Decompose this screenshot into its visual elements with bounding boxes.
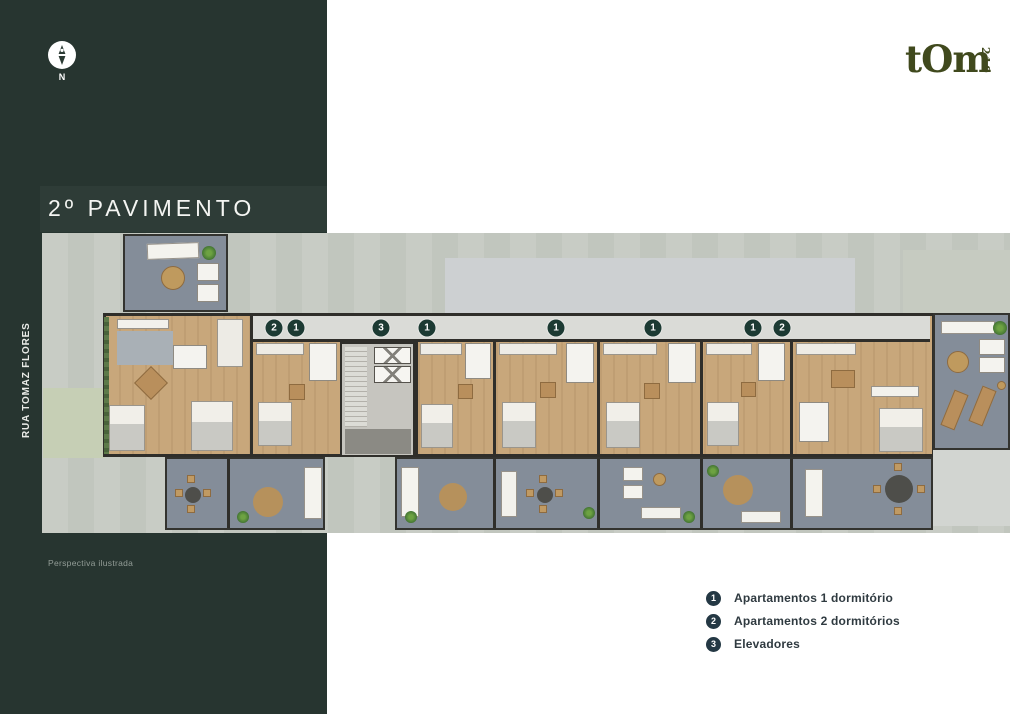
brand-logo-text: tOm <box>905 38 990 80</box>
brand-logo: tOm 219 <box>905 38 1005 88</box>
unit-badge: 2 <box>774 320 791 337</box>
legend-label-3: Elevadores <box>734 637 800 651</box>
legend-badge-3: 3 <box>706 637 721 652</box>
street-label: RUA TOMAZ FLORES <box>21 318 32 438</box>
brand-logo-number: 219 <box>979 47 992 74</box>
unit-badge: 1 <box>548 320 565 337</box>
compass-icon: N <box>47 41 77 85</box>
north-needle-icon <box>56 44 68 66</box>
legend-label-2: Apartamentos 2 dormitórios <box>734 614 900 628</box>
floor-plan: 21311112 <box>42 233 1010 533</box>
legend-item-2dorm: 2 Apartamentos 2 dormitórios <box>706 613 900 629</box>
unit-badge: 1 <box>745 320 762 337</box>
unit-badge: 2 <box>266 320 283 337</box>
unit-badge: 1 <box>645 320 662 337</box>
legend-item-elevators: 3 Elevadores <box>706 636 900 652</box>
legend-badge-2: 2 <box>706 614 721 629</box>
page-title: 2º PAVIMENTO <box>48 195 255 222</box>
badge-layer: 21311112 <box>42 233 1010 533</box>
legend: 1 Apartamentos 1 dormitório 2 Apartament… <box>706 590 900 659</box>
unit-badge: 3 <box>373 320 390 337</box>
legend-item-1dorm: 1 Apartamentos 1 dormitório <box>706 590 900 606</box>
compass-circle <box>48 41 76 69</box>
north-label: N <box>47 72 77 82</box>
page: N 2º PAVIMENTO RUA TOMAZ FLORES Perspect… <box>0 0 1033 714</box>
legend-label-1: Apartamentos 1 dormitório <box>734 591 893 605</box>
unit-badge: 1 <box>288 320 305 337</box>
illustration-caption: Perspectiva ilustrada <box>48 558 133 568</box>
legend-badge-1: 1 <box>706 591 721 606</box>
unit-badge: 1 <box>419 320 436 337</box>
